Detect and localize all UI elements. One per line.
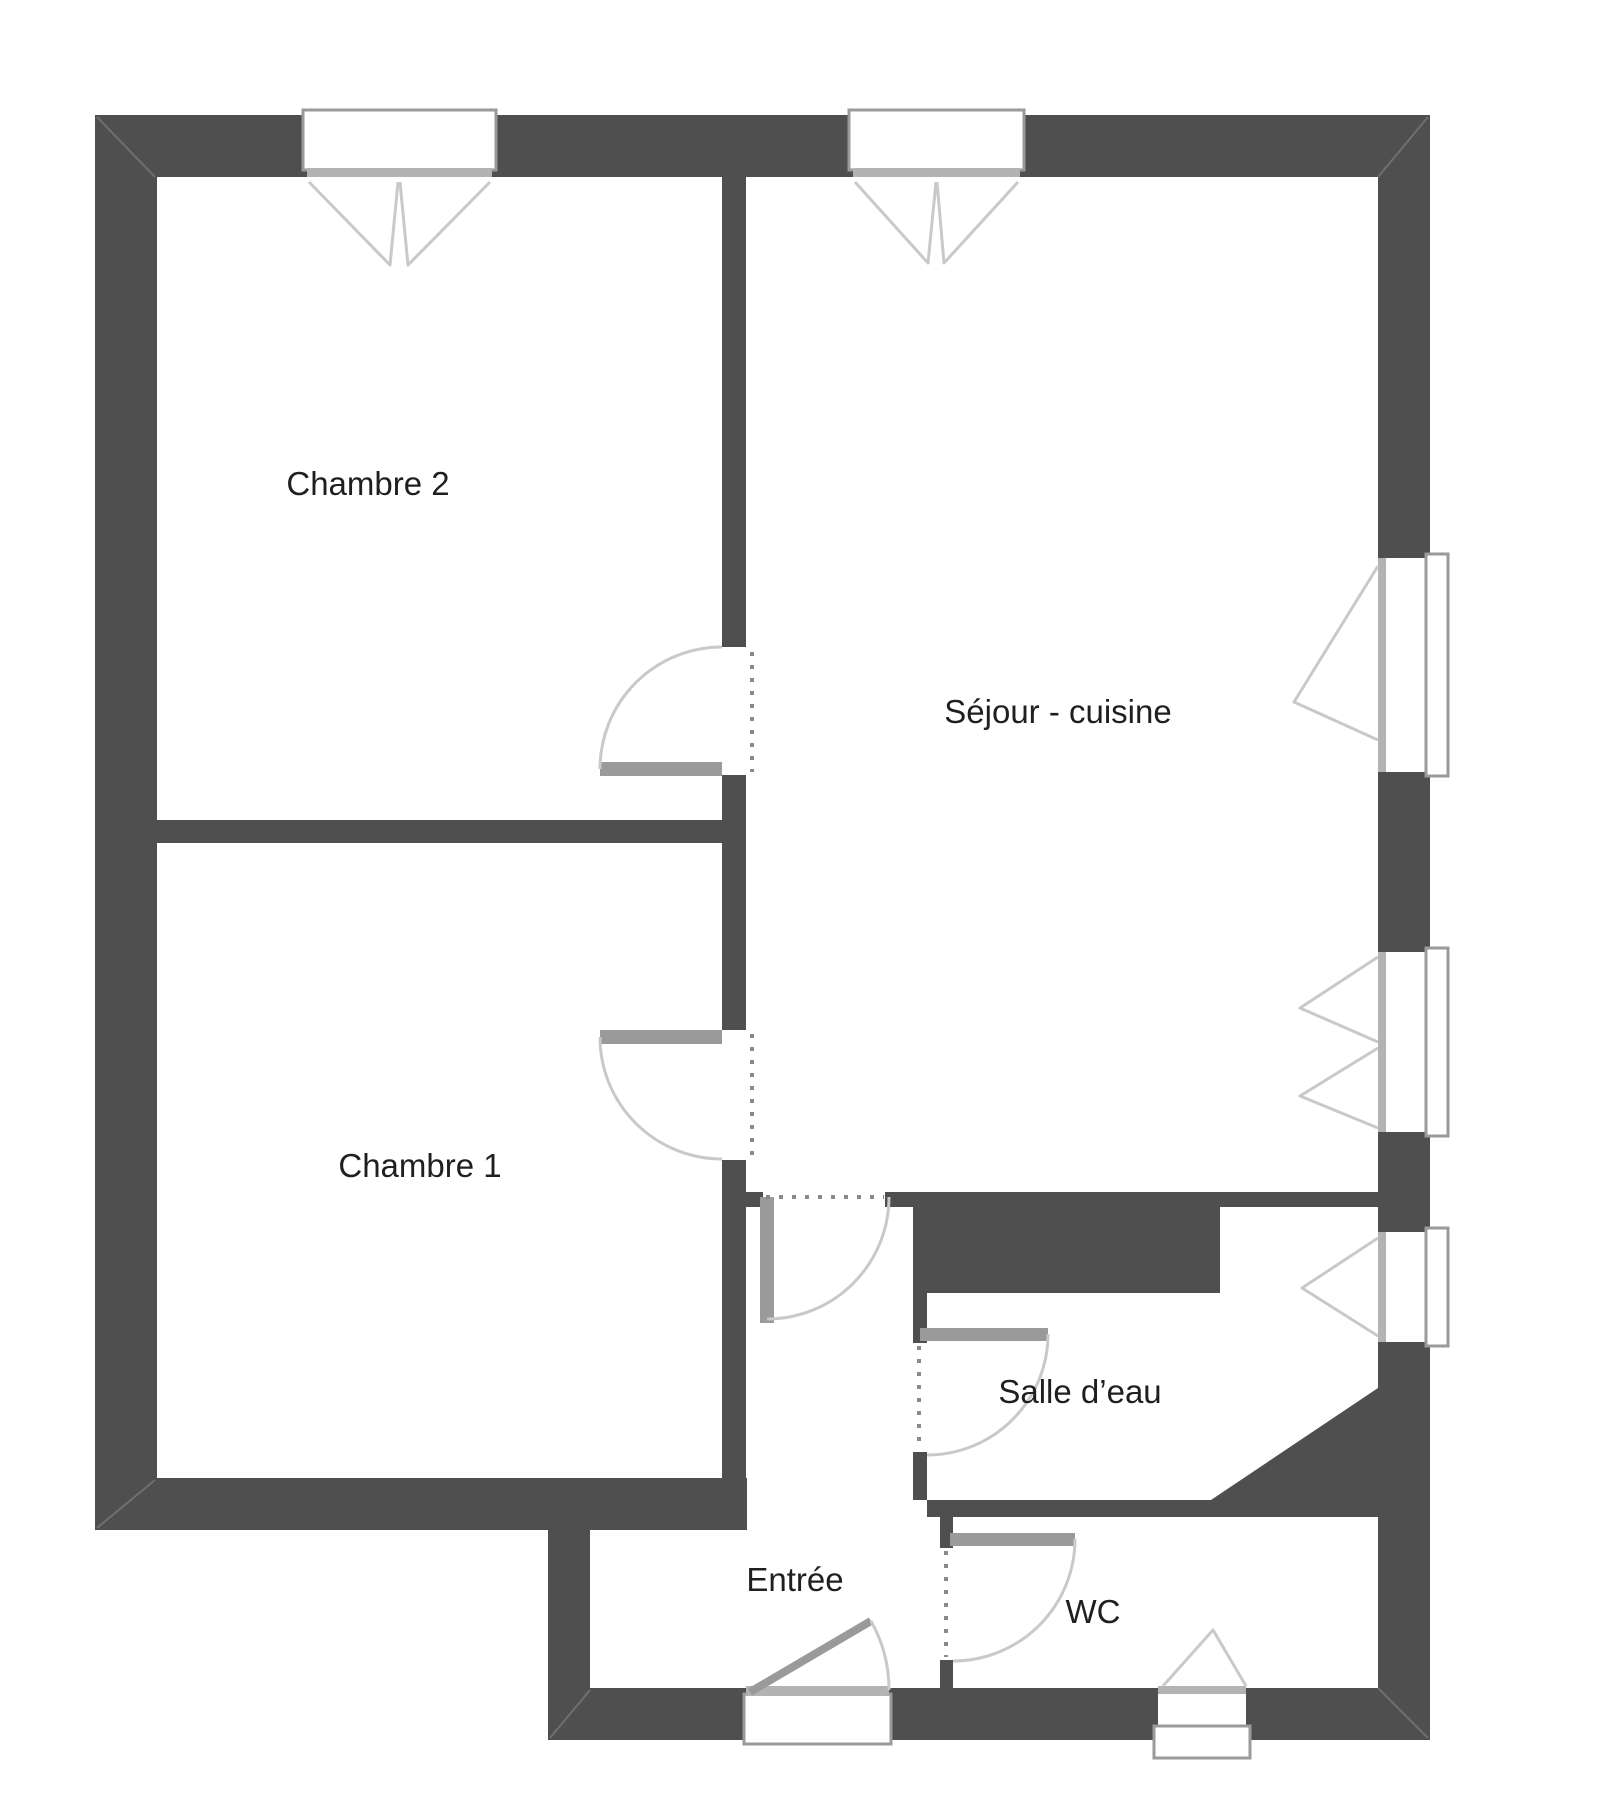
casement-swing-wc-window xyxy=(1163,1630,1246,1686)
casement-swing-salle-deau-window xyxy=(1302,1238,1378,1336)
casement-swing-chambre2-right xyxy=(400,182,490,265)
wall-exterior-top xyxy=(95,115,1430,177)
wall-exterior-left xyxy=(95,115,157,1530)
wall-exterior-bottom xyxy=(548,1688,1430,1740)
room-label-wc: WC xyxy=(1066,1593,1121,1631)
room-label-chambre1: Chambre 1 xyxy=(338,1147,501,1185)
door-leaf-chambre2 xyxy=(600,762,722,776)
wall-salle-deau-south xyxy=(927,1500,1380,1517)
door-arc-entrance xyxy=(871,1621,889,1690)
wall-salle-deau-block xyxy=(913,1207,1220,1293)
door-leaf-salle-deau xyxy=(920,1328,1048,1341)
window-frame-sejour-right-1 xyxy=(1426,554,1448,776)
window-frame-wc xyxy=(1154,1726,1250,1758)
casement-swing-sejour-top-right xyxy=(937,182,1018,263)
casement-swing-sejour-right-2b xyxy=(1300,1048,1378,1128)
casement-swing-sejour-right-1 xyxy=(1294,566,1378,740)
wall-chambre1-south xyxy=(95,1478,747,1530)
window-sill-sejour-top xyxy=(853,168,1020,177)
window-frame-sejour-top xyxy=(849,110,1024,170)
room-label-salle-deau: Salle d’eau xyxy=(998,1373,1161,1411)
opening-door-chambre1 xyxy=(720,1030,748,1160)
wall-interior-vertical xyxy=(722,177,746,1530)
door-leaf-wc xyxy=(950,1533,1075,1546)
wall-chambre-divider xyxy=(155,820,722,843)
window-frame-chambre2 xyxy=(303,110,496,170)
opening-passage-entree-sejour xyxy=(763,1190,885,1209)
door-leaf-entrance xyxy=(750,1621,871,1692)
entrance-sill xyxy=(746,1686,889,1696)
wall-diagonal-corner xyxy=(1208,1388,1378,1502)
window-sill-wc xyxy=(1158,1686,1246,1694)
floor-plan-drawing xyxy=(0,0,1600,1802)
casement-swing-sejour-right-2a xyxy=(1300,957,1378,1042)
window-sill-sejour-right-2 xyxy=(1378,952,1386,1132)
floor-plan: Chambre 2 Chambre 1 Séjour - cuisine Sal… xyxy=(0,0,1600,1802)
door-arc-chambre2 xyxy=(600,647,722,769)
door-arc-entree-sejour xyxy=(767,1197,889,1319)
wall-exterior-right xyxy=(1378,115,1430,1740)
window-frame-sejour-right-2 xyxy=(1426,948,1448,1136)
room-label-sejour: Séjour - cuisine xyxy=(944,693,1171,731)
window-frame-salle-deau xyxy=(1426,1228,1448,1346)
window-sill-chambre2 xyxy=(307,168,492,177)
door-arc-wc xyxy=(953,1539,1075,1661)
room-label-entree: Entrée xyxy=(746,1561,843,1599)
door-leaf-entree-sejour xyxy=(760,1197,774,1323)
opening-door-chambre2 xyxy=(720,647,748,775)
door-leaf-chambre1 xyxy=(600,1030,722,1044)
window-sill-salle-deau xyxy=(1378,1232,1386,1342)
entrance-threshold xyxy=(744,1694,891,1744)
casement-swing-chambre2-left xyxy=(309,182,398,265)
casement-swing-sejour-top-left xyxy=(855,182,936,263)
window-sill-sejour-right-1 xyxy=(1378,558,1386,772)
room-label-chambre2: Chambre 2 xyxy=(286,465,449,503)
door-arc-chambre1 xyxy=(600,1037,722,1159)
